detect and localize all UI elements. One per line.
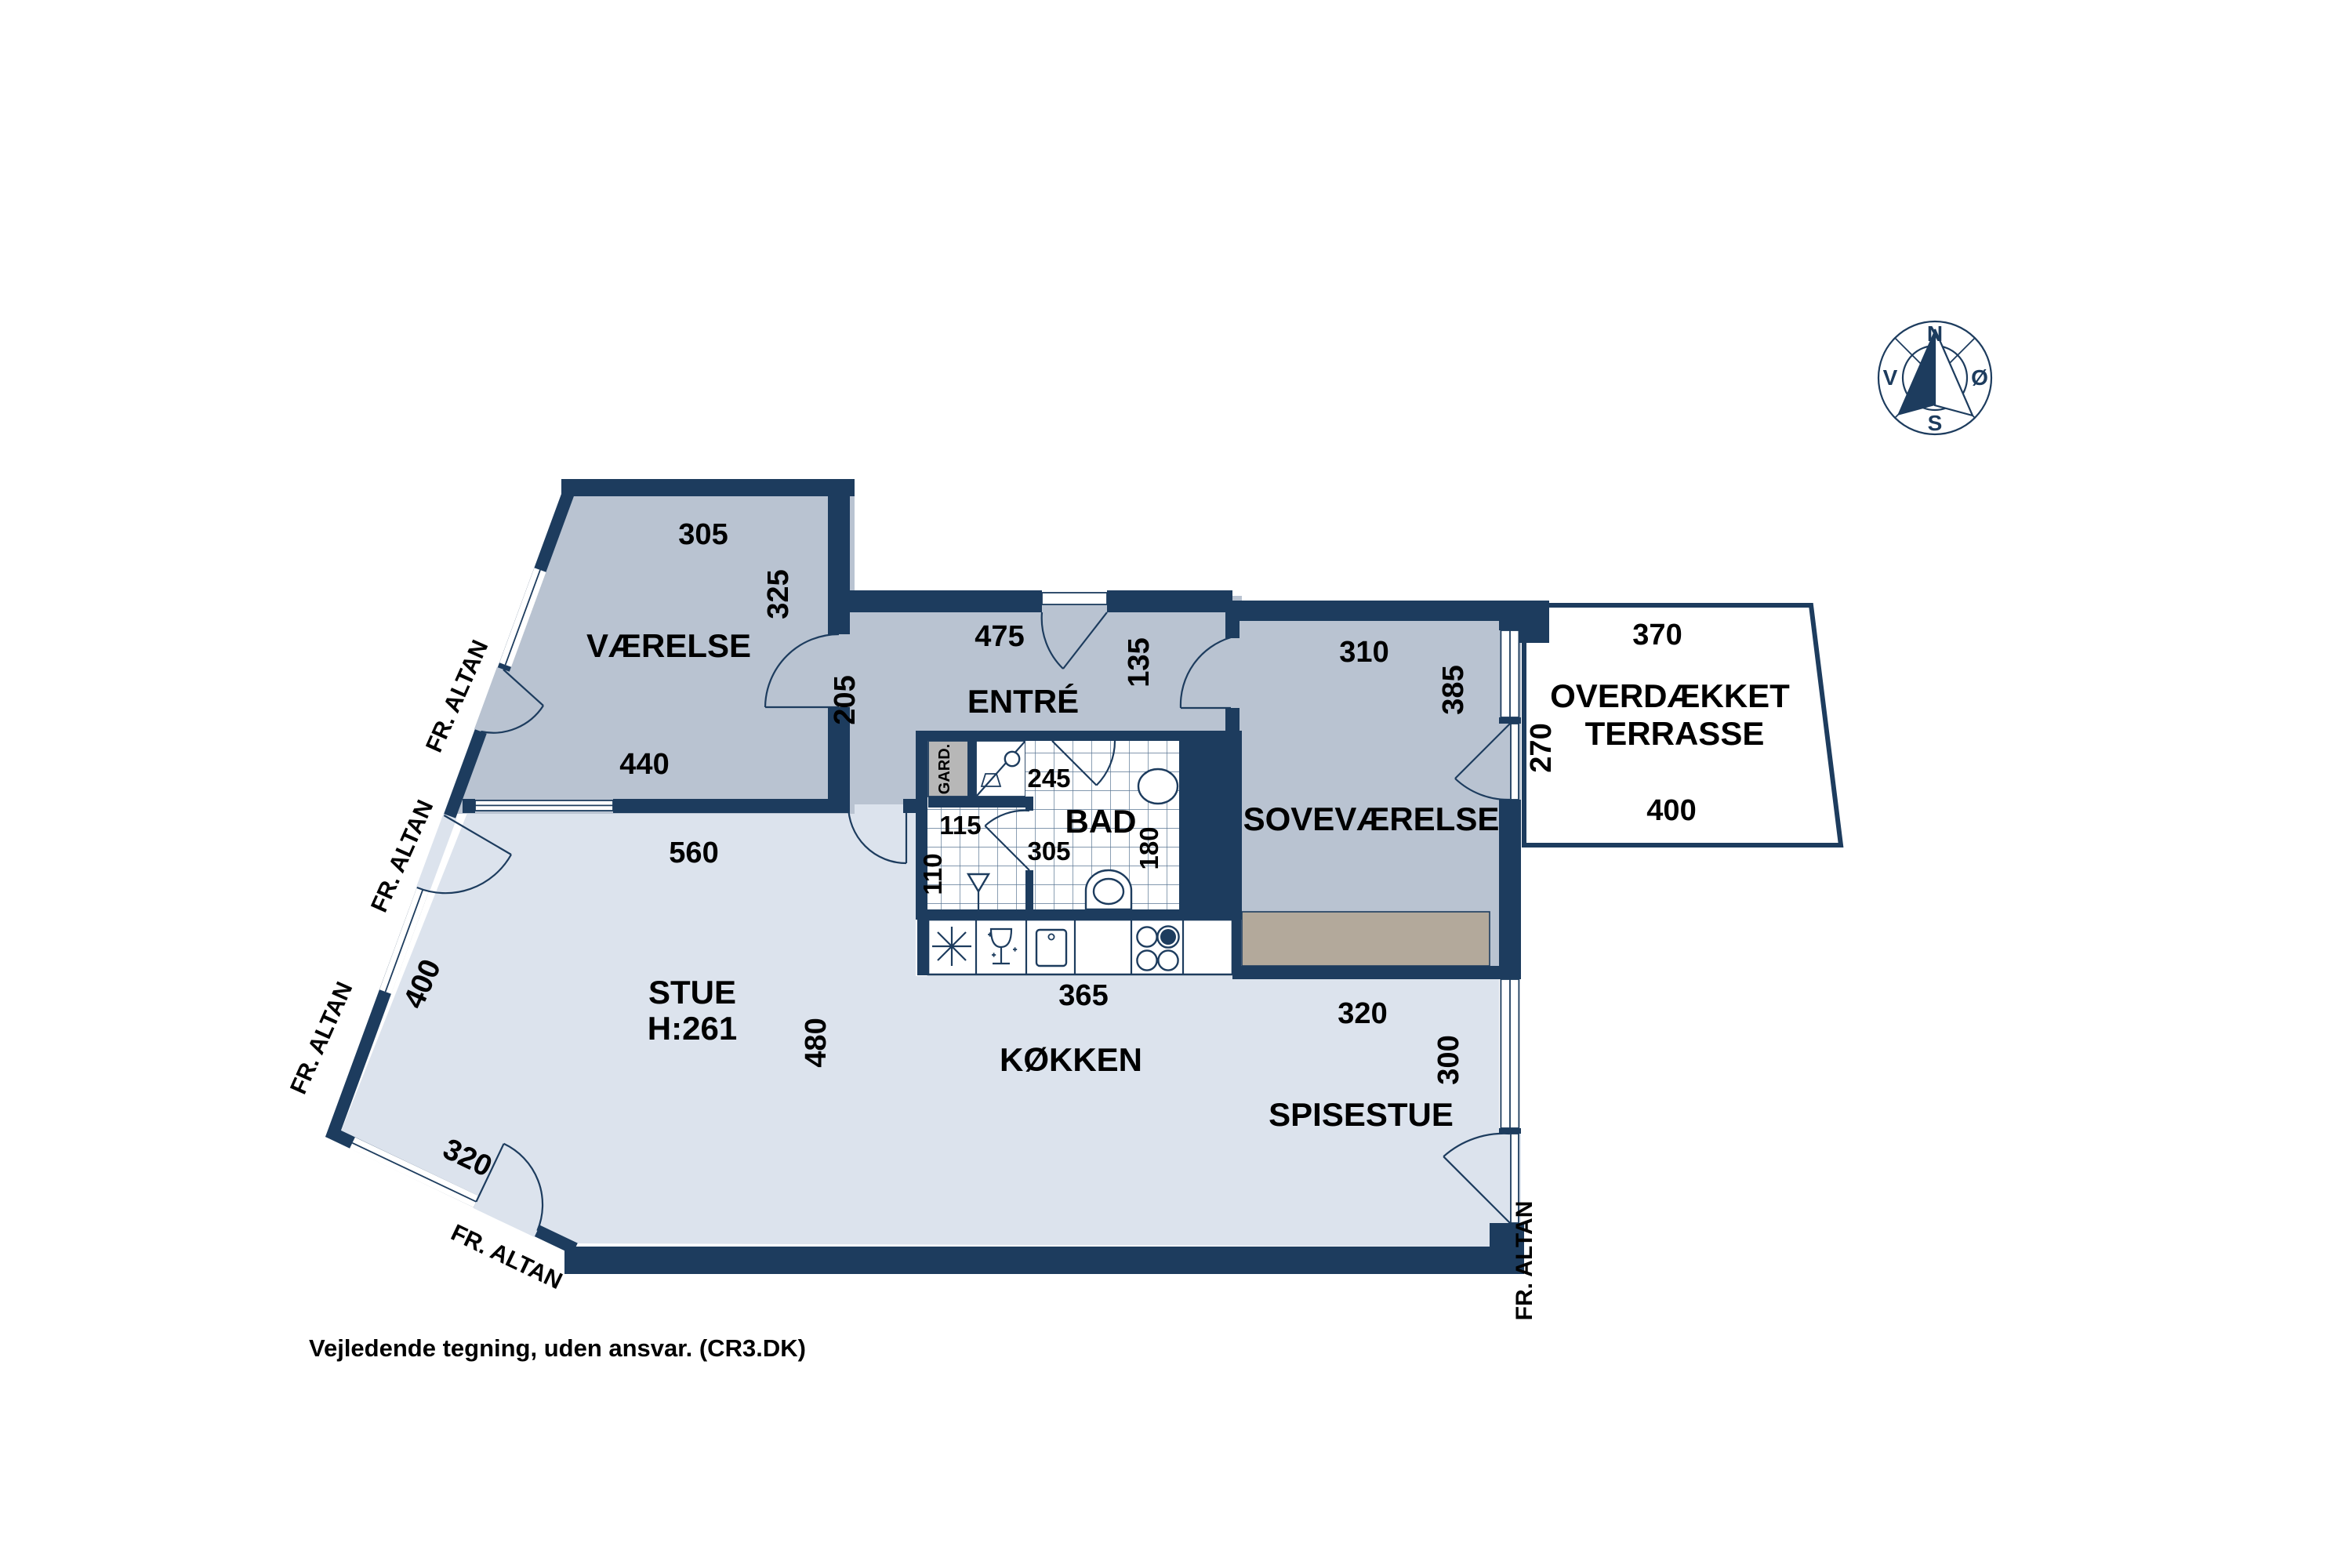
room-label-koekken: KØKKEN [1000, 1041, 1142, 1078]
washbasin-icon [1086, 870, 1131, 909]
room-label-vaerelse: VÆRELSE [586, 627, 751, 664]
dim-vaerelse-right: 325 [762, 569, 795, 619]
floor-plan-page: VÆRELSE 305 325 440 205 ENTRÉ 475 135 BA… [0, 0, 2352, 1568]
dim-koekken-top: 365 [1058, 979, 1108, 1012]
dim-terrasse-top: 370 [1632, 619, 1682, 652]
dim-spisestue-right: 300 [1432, 1035, 1465, 1084]
entrance-threshold [1042, 593, 1107, 604]
dim-terrasse-bottom: 400 [1646, 794, 1696, 827]
fr-altan-label: FR. ALTAN [1512, 1201, 1537, 1321]
room-label-terrasse-line1: OVERDÆKKET [1550, 677, 1790, 714]
kitchen-row [928, 920, 1232, 975]
compass-north: N [1927, 321, 1943, 346]
dim-stue-top: 560 [669, 837, 718, 869]
dim-sovevaerelse-top: 310 [1339, 636, 1388, 669]
fan-icon [932, 927, 971, 966]
dim-spisestue-top: 320 [1338, 997, 1387, 1030]
dim-vaerelse-top: 305 [678, 518, 728, 551]
dim-bad-shower: 245 [1027, 764, 1070, 793]
washbasin-small-icon [1005, 752, 1019, 766]
dim-entre-top: 475 [975, 620, 1024, 653]
room-label-spisestue: SPISESTUE [1269, 1096, 1454, 1133]
toilet-icon [1138, 769, 1178, 804]
room-label-stue: STUE [648, 974, 736, 1011]
dim-bad-wc-width: 115 [939, 811, 981, 840]
room-label-sovevaerelse: SOVEVÆRELSE [1243, 800, 1500, 837]
compass-rose: N Ø S V [1878, 321, 1991, 435]
stue-ceiling-height: H:261 [648, 1010, 737, 1047]
dim-stue-mid: 480 [800, 1018, 833, 1067]
dim-terrasse-left: 270 [1525, 723, 1558, 772]
window-divider [475, 800, 613, 811]
window-spisestue [1501, 979, 1519, 1128]
compass-south: S [1928, 411, 1943, 435]
compass-west: V [1883, 365, 1898, 390]
dim-vaerelse-hall: 205 [829, 675, 862, 724]
dim-entre-right: 135 [1123, 637, 1156, 687]
dim-sovevaerelse-right: 385 [1437, 665, 1470, 714]
compass-east: Ø [1971, 365, 1988, 390]
window-sovevaerelse [1501, 630, 1519, 717]
floor-plan-svg: VÆRELSE 305 325 440 205 ENTRÉ 475 135 BA… [0, 0, 2352, 1568]
dim-bad-height: 180 [1134, 826, 1163, 869]
room-label-terrasse-line2: TERRASSE [1585, 715, 1765, 752]
dim-bad-width: 305 [1027, 837, 1070, 866]
room-label-bad: BAD [1065, 803, 1137, 840]
sink-icon [1036, 930, 1066, 966]
dim-bad-wc-height: 110 [918, 853, 947, 895]
room-label-entre: ENTRÉ [967, 683, 1079, 720]
gard-label: GARD. [936, 744, 953, 794]
disclaimer-text: Vejledende tegning, uden ansvar. (CR3.DK… [309, 1334, 806, 1362]
dim-vaerelse-bottom: 440 [619, 748, 669, 781]
bedroom-wardrobe [1242, 912, 1490, 966]
